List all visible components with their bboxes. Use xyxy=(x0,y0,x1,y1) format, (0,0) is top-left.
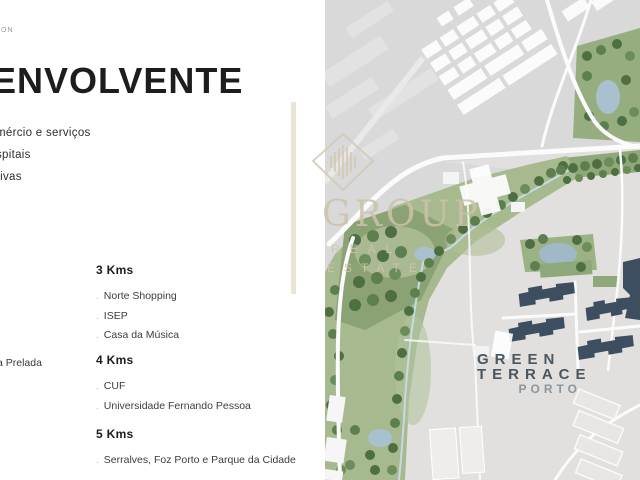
watermark-subtitle-line1: REAL xyxy=(331,242,402,256)
list-item: .Casa da Música xyxy=(96,326,326,346)
distance-group-4km: 4 Kms .CUF .Universidade Fernando Pessoa xyxy=(96,353,326,416)
project-city: PORTO xyxy=(477,383,587,395)
list-item: .Serralves, Foz Porto e Parque da Cidade xyxy=(96,451,326,471)
diamond-logo-icon xyxy=(311,132,375,192)
list-item: .Universidade Fernando Pessoa xyxy=(96,397,326,417)
intro-item: spitais xyxy=(0,144,91,166)
bullet: . xyxy=(96,381,99,392)
distance-heading: 5 Kms xyxy=(96,427,326,441)
bullet: . xyxy=(96,330,99,341)
page-title: ENVOLVENTE xyxy=(0,60,243,102)
bullet: . xyxy=(96,311,99,322)
list-item: .ISEP xyxy=(96,307,326,327)
distance-heading: 4 Kms xyxy=(96,353,326,367)
intro-item: mércio e serviços xyxy=(0,122,91,144)
list-item: .CUF xyxy=(96,377,326,397)
project-name-line2: TERRACE xyxy=(477,367,587,382)
watermark-brand: GROUP xyxy=(322,194,482,235)
map-illustration xyxy=(325,0,640,480)
park-right xyxy=(573,28,640,142)
watermark-subtitle-line2: ESTATE xyxy=(327,261,426,275)
distance-group-5km: 5 Kms .Serralves, Foz Porto e Parque da … xyxy=(96,427,326,471)
kicker-label: ON xyxy=(1,27,14,34)
project-label: GREEN TERRACE PORTO xyxy=(477,352,587,395)
accent-bar xyxy=(291,102,296,294)
intro-item: rivas xyxy=(0,166,91,188)
slide: ON ENVOLVENTE mércio e serviços spitais … xyxy=(0,0,640,480)
bullet: . xyxy=(96,291,99,302)
edge-poi-label: a Prelada xyxy=(0,357,42,369)
bullet: . xyxy=(96,401,99,412)
intro-list: mércio e serviços spitais rivas xyxy=(0,122,91,188)
bullet: . xyxy=(96,455,99,466)
project-name-line1: GREEN xyxy=(477,352,587,367)
